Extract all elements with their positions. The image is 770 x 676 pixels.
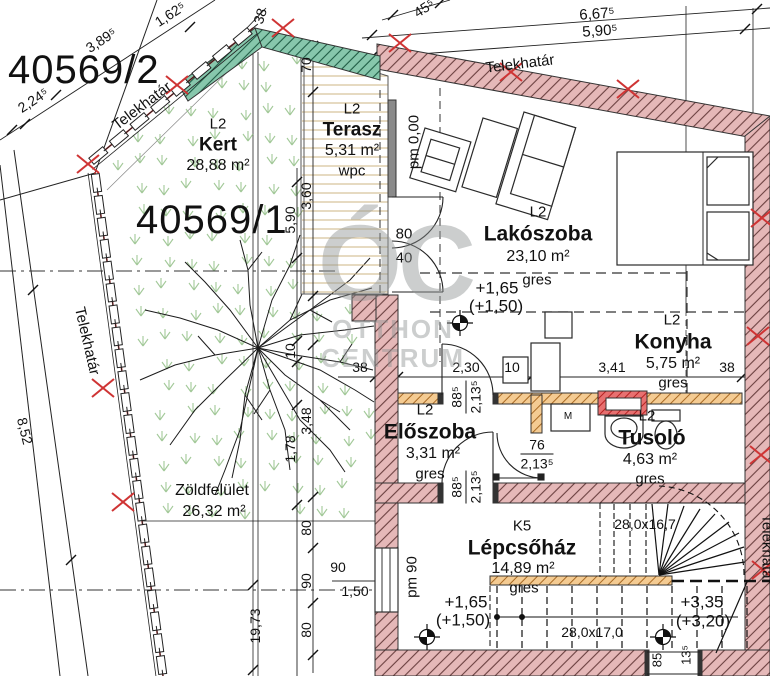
dim-h-230: 2,30 <box>452 360 479 374</box>
tusolo-area: 4,63 m² <box>623 452 677 468</box>
door-dim-76-width: 76 <box>520 438 553 455</box>
dim-plot-1973: 19,73 <box>248 608 262 643</box>
terasz-code: L2 <box>344 102 361 117</box>
terasz-name: Terasz <box>323 121 382 140</box>
lakoszoba-level: +1,65 <box>475 280 518 297</box>
dim-win-90: 90 <box>330 560 346 574</box>
eloszoba-finish: gres <box>415 467 444 482</box>
parcel-number-secondary: 40569/2 <box>8 50 160 90</box>
lepcsohaz-finish: gres <box>509 581 538 596</box>
lakoszoba-name: Lakószoba <box>484 224 593 245</box>
stair-level-entry-alt: (+1,50) <box>436 612 490 629</box>
dim-open-85: 85 <box>651 653 664 667</box>
konyha-area: 5,75 m² <box>646 356 700 372</box>
dim-v-90: 90 <box>299 573 313 589</box>
dim-v-178: 1,78 <box>283 435 297 462</box>
lakoszoba-finish: gres <box>522 273 551 288</box>
dim-h-38b: 38 <box>719 360 735 374</box>
lepcsohaz-name: Lépcsőház <box>468 538 577 559</box>
dim-terasz-70: 70 <box>299 57 313 73</box>
eloszoba-area: 3,31 m² <box>406 446 460 462</box>
lakoszoba-area: 23,10 m² <box>506 249 569 265</box>
door-dim-76-height: 2,13⁵ <box>520 455 553 471</box>
dim-door-40: 40 <box>396 251 413 266</box>
kert-code: L2 <box>210 117 227 132</box>
terasz-area: 5,31 m² <box>325 143 379 159</box>
zoldfelulet-name: Zöldfelület <box>175 483 249 499</box>
kert-name: Kert <box>199 136 237 155</box>
door-dim-885b: 88⁵ 2,13⁵ <box>450 470 483 503</box>
dim-h-10: 10 <box>504 360 520 374</box>
kert-area: 28,88 m² <box>186 158 249 174</box>
lepcsohaz-code: K5 <box>513 519 531 534</box>
stair-level-upper: +3,35 <box>680 594 723 611</box>
terasz-finish: wpc <box>339 164 366 179</box>
dim-plot-1625: 1,62⁵ <box>152 0 187 29</box>
dim-h-341: 3,41 <box>598 360 625 374</box>
floor-plan: 40569/2 40569/1 Telekhatár Telekhatár Te… <box>0 0 770 676</box>
stair-level-entry: +1,65 <box>444 594 487 611</box>
stair-level-upper-alt: (+3,20) <box>676 613 730 630</box>
dim-plot-455: 45⁵ <box>411 0 437 20</box>
dim-garden-590: 5,90 <box>283 206 297 233</box>
tusolo-code: L2 <box>639 409 656 424</box>
boundary-label-ne: Telekhatár <box>485 52 556 75</box>
konyha-name: Konyha <box>634 332 711 353</box>
door-dim-885a-height: 2,13⁵ <box>467 380 483 413</box>
dim-v-10: 10 <box>283 343 297 359</box>
konyha-finish: gres <box>658 376 687 391</box>
door-dim-885a: 88⁵ 2,13⁵ <box>450 380 483 413</box>
dim-door-80: 80 <box>396 227 413 242</box>
dim-terasz-360: 3,60 <box>299 182 313 209</box>
door-dim-885b-width: 88⁵ <box>450 470 467 503</box>
door-dim-885b-height: 2,13⁵ <box>467 470 483 503</box>
dim-win-150: 1,50 <box>341 584 368 598</box>
stair-step-lower: 28,0x17,0 <box>561 625 623 639</box>
parcel-number-main: 40569/1 <box>136 200 288 240</box>
washer-label: M <box>564 412 572 422</box>
dim-open-135: 13⁵ <box>680 645 693 665</box>
eloszoba-code: L2 <box>417 403 434 418</box>
dim-plot-6675: 6,67⁵ <box>579 5 615 22</box>
dim-plot-5905: 5,90⁵ <box>582 22 618 39</box>
zoldfelulet-area: 26,32 m² <box>182 504 245 520</box>
door-dim-885a-width: 88⁵ <box>450 380 467 413</box>
dim-h-38a: 38 <box>352 360 368 374</box>
tusolo-finish: gres <box>635 472 664 487</box>
lakoszoba-code: L2 <box>530 205 547 220</box>
plan-labels: 40569/2 40569/1 Telekhatár Telekhatár Te… <box>0 0 770 676</box>
datum-pm-90: pm 90 <box>405 556 420 598</box>
door-dim-76: 76 2,13⁵ <box>520 438 553 471</box>
datum-pm-zero: pm 0,00 <box>407 115 422 169</box>
konyha-code: L2 <box>664 313 681 328</box>
dim-v-80a: 80 <box>299 520 313 536</box>
boundary-label-w: Telekhatár <box>72 306 102 377</box>
lakoszoba-level-alt: (+1,50) <box>469 298 523 315</box>
dim-wall-38: 38 <box>251 7 269 26</box>
eloszoba-name: Előszoba <box>384 422 476 443</box>
stair-step-upper: 28,0x16,7 <box>614 517 676 531</box>
tusolo-name: Tusoló <box>618 428 685 449</box>
lepcsohaz-area: 14,89 m² <box>491 561 554 577</box>
dim-v-348: 3,48 <box>299 407 313 434</box>
boundary-label-e: Telekhatár <box>760 514 770 583</box>
dim-plot-852: 8,52 <box>15 416 35 446</box>
dim-v-80b: 80 <box>299 622 313 638</box>
